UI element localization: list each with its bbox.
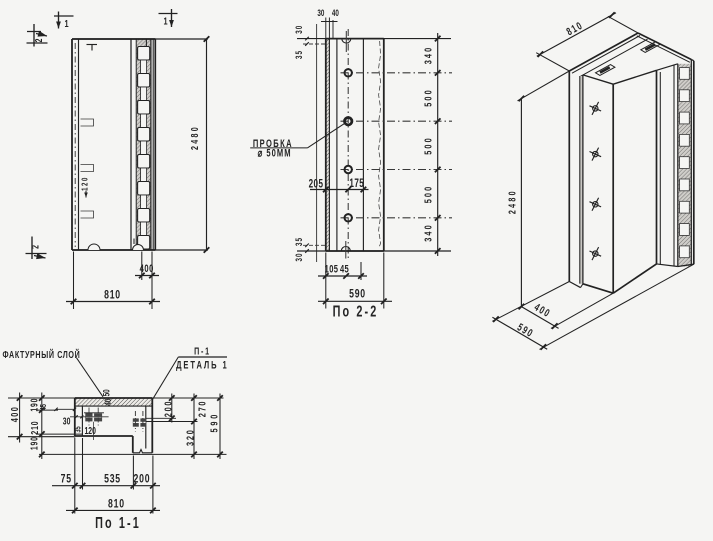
svg-text:190: 190: [28, 398, 40, 412]
svg-text:400: 400: [140, 263, 154, 275]
svg-text:205: 205: [309, 178, 324, 191]
svg-text:590: 590: [208, 412, 220, 433]
svg-text:210: 210: [29, 421, 41, 435]
svg-text:2480: 2480: [189, 125, 201, 150]
svg-text:200: 200: [134, 472, 151, 486]
svg-text:ФАКТУРНЫЙ СЛОЙ: ФАКТУРНЫЙ СЛОЙ: [3, 348, 81, 361]
svg-text:200: 200: [162, 400, 174, 417]
svg-text:2: 2: [33, 38, 45, 42]
svg-text:По 2-2: По 2-2: [333, 303, 379, 320]
svg-text:500: 500: [422, 136, 434, 155]
svg-text:1: 1: [163, 15, 167, 27]
svg-text:810: 810: [108, 497, 125, 511]
svg-text:2480: 2480: [506, 189, 518, 214]
svg-text:⌀ 50ММ: ⌀ 50ММ: [258, 147, 292, 159]
svg-text:590: 590: [349, 287, 366, 301]
svg-text:П-1: П-1: [194, 345, 211, 357]
svg-text:2: 2: [29, 245, 41, 249]
svg-text:320: 320: [184, 428, 196, 445]
svg-text:По 1-1: По 1-1: [95, 514, 141, 531]
svg-text:175: 175: [349, 178, 364, 191]
svg-text:120: 120: [79, 176, 89, 191]
svg-text:35: 35: [75, 426, 83, 432]
svg-text:500: 500: [422, 88, 434, 107]
svg-text:40: 40: [103, 399, 113, 406]
svg-text:75: 75: [61, 472, 72, 486]
svg-text:30: 30: [294, 25, 304, 34]
svg-text:340: 340: [422, 46, 434, 65]
svg-text:40: 40: [332, 8, 339, 18]
svg-text:1: 1: [64, 18, 68, 30]
svg-text:120: 120: [84, 425, 96, 437]
svg-text:190: 190: [28, 436, 40, 450]
svg-text:810: 810: [104, 288, 121, 302]
svg-text:500: 500: [422, 185, 434, 204]
svg-text:535: 535: [104, 472, 121, 486]
svg-text:30: 30: [63, 415, 71, 427]
svg-text:45: 45: [40, 404, 48, 410]
svg-text:35: 35: [294, 50, 304, 59]
svg-text:50: 50: [101, 389, 111, 396]
svg-text:105: 105: [325, 263, 339, 275]
svg-text:ДЕТАЛЬ 1: ДЕТАЛЬ 1: [176, 359, 229, 371]
svg-text:45: 45: [340, 263, 349, 275]
svg-text:35: 35: [294, 237, 304, 246]
svg-text:30: 30: [294, 252, 304, 261]
svg-text:270: 270: [196, 400, 208, 417]
svg-text:340: 340: [422, 223, 434, 242]
svg-text:30: 30: [317, 8, 324, 18]
svg-text:400: 400: [9, 406, 21, 422]
